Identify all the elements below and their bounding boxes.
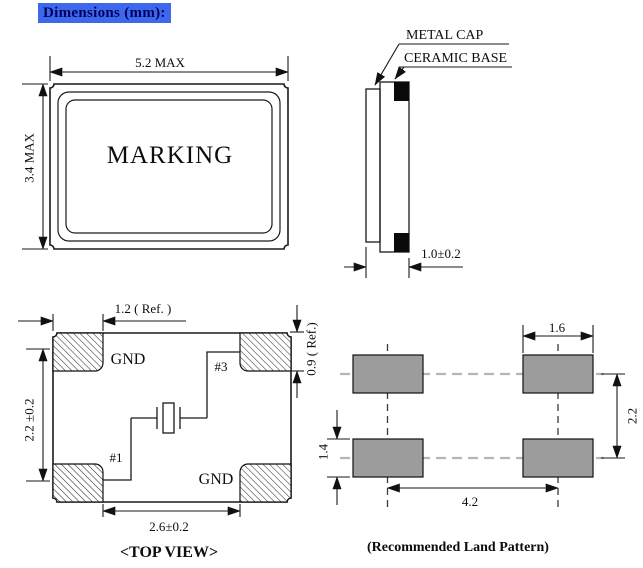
side-package bbox=[366, 82, 409, 252]
land-pad-bottom-right bbox=[523, 439, 593, 477]
side-view: METAL CAP CERAMIC BASE 1.0±0.2 bbox=[344, 28, 512, 278]
land-column-spacing-label: 4.2 bbox=[462, 494, 478, 509]
dim-front-height: 3.4 MAX bbox=[22, 84, 49, 249]
dim-inner-pad-gap: 2.6±0.2 bbox=[103, 504, 240, 534]
corner-pad-width-label: 1.2 ( Ref. ) bbox=[115, 301, 172, 316]
land-row-spacing-label: 2.2 bbox=[625, 408, 640, 424]
land-pad-top-right bbox=[523, 355, 593, 393]
ceramic-base-label: CERAMIC BASE bbox=[404, 51, 507, 66]
ceramic-base-callout: CERAMIC BASE bbox=[395, 51, 512, 79]
dim-land-column-spacing: 4.2 bbox=[388, 488, 559, 509]
pad-1-bottom-left bbox=[53, 464, 103, 502]
land-pad-width-label: 1.6 bbox=[549, 320, 566, 335]
inner-pad-gap-label: 2.6±0.2 bbox=[149, 519, 189, 534]
land-pattern-title: (Recommended Land Pattern) bbox=[367, 540, 549, 555]
top-view-title: <TOP VIEW> bbox=[120, 544, 218, 561]
pad-gnd-bottom-right bbox=[240, 464, 291, 502]
dim-front-width: 5.2 MAX bbox=[50, 55, 288, 81]
pad-label-1: #1 bbox=[110, 450, 123, 465]
land-pad-bottom-left bbox=[353, 439, 423, 477]
technical-drawing: MARKING 5.2 MAX 3.4 MAX bbox=[0, 0, 643, 563]
metal-cap-label: METAL CAP bbox=[406, 28, 484, 43]
pad-label-gnd-top: GND bbox=[111, 351, 146, 368]
dim-corner-pad-height: 0.9 ( Ref.) bbox=[288, 305, 319, 398]
pad-3-top-right bbox=[240, 333, 291, 371]
vertical-pad-spacing-label: 2.2 ±0.2 bbox=[22, 399, 37, 442]
dim-corner-pad-width: 1.2 ( Ref. ) bbox=[18, 301, 186, 331]
dim-vertical-pad-spacing: 2.2 ±0.2 bbox=[22, 349, 51, 481]
dimensions-title: Dimensions (mm): bbox=[38, 3, 171, 23]
land-pattern-view: 1.6 2.2 1.4 4.2 bbox=[316, 320, 640, 555]
pad-label-gnd-bottom: GND bbox=[199, 471, 234, 488]
front-height-dim-label: 3.4 MAX bbox=[22, 132, 37, 182]
land-pad-top-left bbox=[353, 355, 423, 393]
side-thickness-dim-label: 1.0±0.2 bbox=[421, 246, 461, 261]
land-pad-height-label: 1.4 bbox=[316, 443, 331, 460]
dim-land-row-spacing: 2.2 bbox=[601, 374, 640, 458]
pad-label-3: #3 bbox=[215, 359, 228, 374]
castellation-pad-bottom bbox=[394, 233, 409, 252]
crystal-symbol bbox=[131, 403, 207, 433]
front-view: MARKING 5.2 MAX 3.4 MAX bbox=[22, 55, 289, 249]
pad-gnd-top-left bbox=[53, 333, 103, 371]
top-view: GND #3 #1 GND 1.2 ( Ref. ) 2.2 ±0.2 bbox=[18, 301, 319, 561]
marking-label: MARKING bbox=[107, 142, 233, 169]
castellation-pad-top bbox=[394, 82, 409, 101]
corner-pad-height-label: 0.9 ( Ref.) bbox=[304, 322, 319, 375]
front-width-dim-label: 5.2 MAX bbox=[135, 55, 185, 70]
